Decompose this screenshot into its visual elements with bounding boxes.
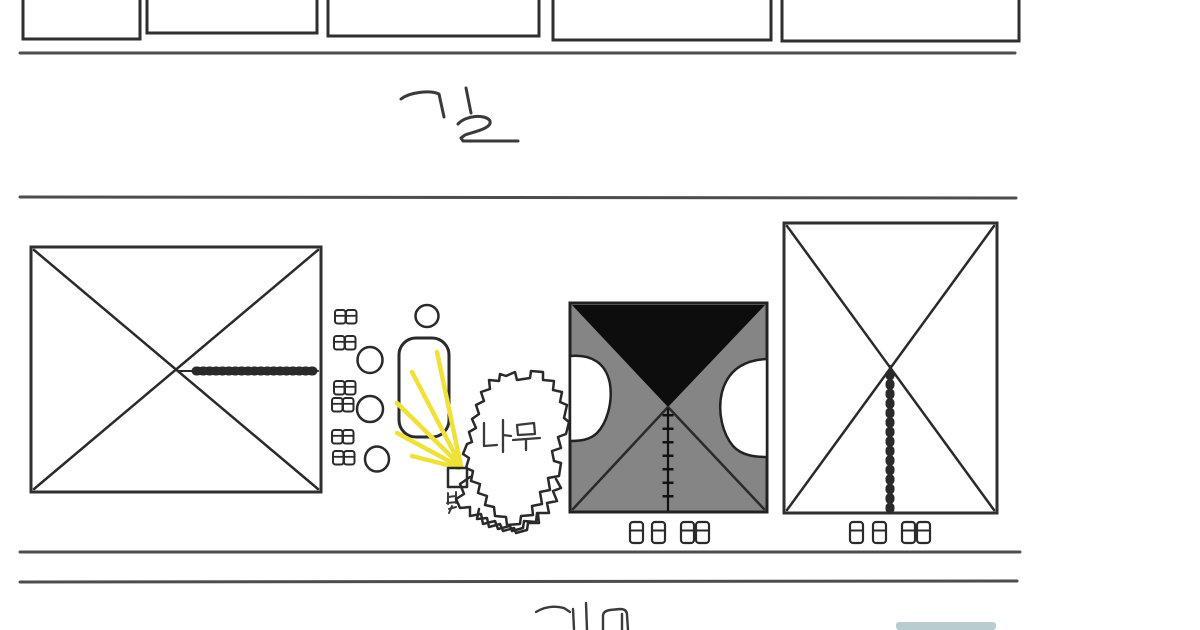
desk-icon: [332, 430, 343, 444]
desk-row-below-right: [850, 522, 930, 543]
bottom-partial-bar: [896, 622, 996, 630]
desk-icon: [333, 451, 344, 465]
center-gray-building: [570, 303, 767, 512]
desk-icon: [902, 522, 915, 543]
desk-icon: [334, 381, 345, 395]
desk-icon: [343, 430, 354, 444]
top-building-2: [147, 0, 317, 33]
light-rays: [397, 352, 461, 468]
desk-icon: [332, 398, 343, 412]
desk-icon: [343, 398, 354, 412]
circle-stool-1: [358, 347, 383, 373]
top-building-4: [553, 0, 771, 40]
upper-road-bottom-line: [20, 197, 1016, 198]
desk-icon: [681, 522, 694, 543]
desk-icon: [630, 522, 643, 543]
tree: 나무: [456, 371, 569, 533]
tree-label-namu: [484, 420, 540, 452]
light-source-square: [448, 468, 467, 487]
road-label-gil: 길: [401, 88, 518, 141]
hand-drawn-map-canvas: outlined rectangles cut off by top edge …: [0, 0, 1200, 630]
upper-road: [20, 53, 1016, 198]
desk-icon: [696, 522, 709, 543]
desk-icon: [345, 336, 356, 350]
lower-road-bottom-line: [20, 581, 1017, 582]
bottom-road-label-partial: 계: [536, 603, 628, 630]
circle-stool-3: [365, 447, 389, 472]
top-building-row: outlined rectangles cut off by top edge: [23, 0, 1019, 41]
light-label-bit: 빛: [447, 492, 457, 513]
small-circle-top: [416, 305, 439, 327]
desk-icon: [344, 451, 355, 465]
lower-road: [20, 552, 1020, 582]
top-building-5: [782, 0, 1019, 41]
desk-row-below-center: [630, 522, 709, 543]
right-building: [784, 223, 997, 513]
desk-icon: [334, 336, 345, 350]
top-building-3: [328, 0, 539, 36]
desk-icon: [346, 310, 357, 324]
top-building-1: [23, 0, 140, 39]
circle-stool-2: [357, 396, 383, 422]
left-building: [31, 247, 321, 492]
desk-circle-cluster: [332, 305, 449, 472]
sketch-map: outlined rectangles cut off by top edge …: [0, 0, 1200, 630]
light-source: 빛: [447, 468, 467, 513]
desk-icon: [850, 522, 863, 543]
pill-bench: [399, 338, 449, 437]
desk-icon: [652, 522, 665, 543]
desk-icon: [917, 522, 930, 543]
desk-icon: [873, 522, 886, 543]
tree-bush-outline-1: [456, 477, 561, 531]
desk-icon: [335, 310, 346, 324]
desk-icon: [345, 381, 356, 395]
